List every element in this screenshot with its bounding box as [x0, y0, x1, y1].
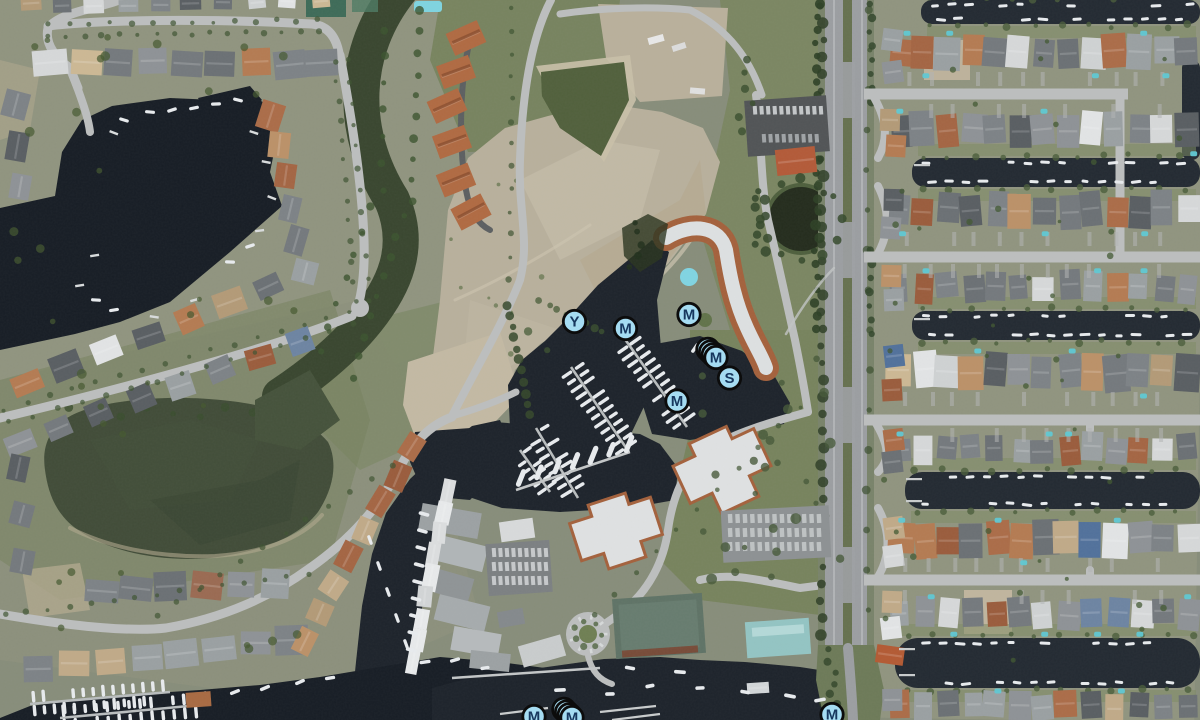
svg-text:S: S [724, 370, 734, 387]
svg-text:M: M [528, 709, 541, 720]
svg-text:Y: Y [569, 314, 579, 331]
svg-text:M: M [710, 350, 723, 367]
svg-text:M: M [671, 393, 684, 410]
svg-text:M: M [683, 307, 696, 324]
svg-text:M: M [619, 321, 632, 338]
svg-text:M: M [566, 710, 579, 720]
svg-text:M: M [826, 707, 839, 720]
